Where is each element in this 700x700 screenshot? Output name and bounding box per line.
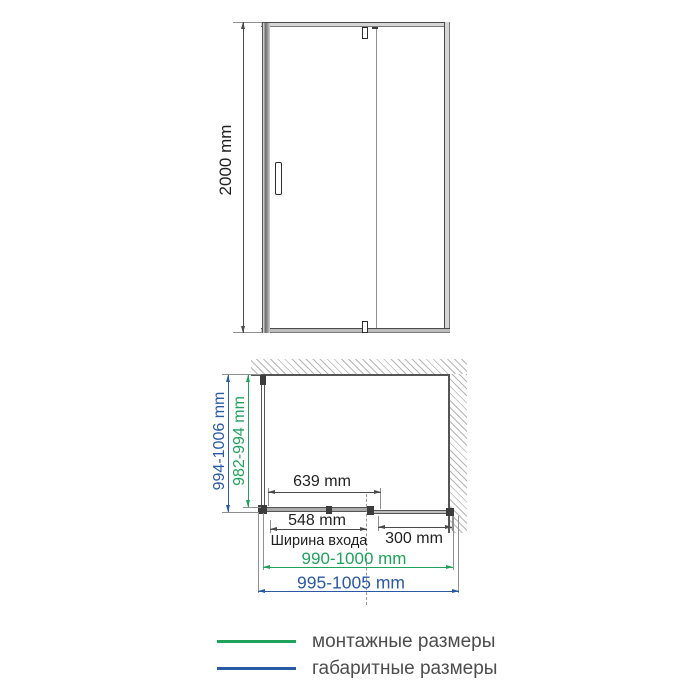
legend-mounting-swatch (217, 640, 296, 643)
technical-drawing-canvas: 2000 mm 639 mm 548 mm Ширина входа (0, 0, 700, 700)
side-panel-wall-block (260, 375, 266, 385)
dim-639-label: 639 mm (293, 473, 351, 491)
door-divider-line (376, 27, 377, 328)
height-extension-bottom (233, 332, 262, 333)
plan-view: 639 mm 548 mm Ширина входа 300 mm 990-10… (0, 350, 700, 610)
legend-overall-swatch (217, 667, 296, 670)
dim-300-line (378, 527, 452, 528)
ext-width-right-inner (453, 516, 454, 570)
legend-overall-label: габаритные размеры (312, 658, 497, 680)
dim-300-label: 300 mm (385, 530, 443, 548)
top-hinge-mount (372, 27, 378, 29)
legend: монтажные размеры габаритные размеры (0, 610, 700, 700)
wall-profile-left (262, 23, 270, 333)
dim-overall-width-label: 995-1005 mm (297, 573, 405, 594)
frame-right (444, 22, 450, 333)
bottom-hinge (362, 321, 368, 333)
height-extension-top (233, 22, 262, 23)
ext-width-left-outer (258, 513, 259, 593)
top-hinge (362, 27, 368, 39)
dim-639-line (268, 492, 381, 493)
side-panel-plan (261, 375, 265, 508)
frame-bottom (261, 328, 450, 333)
dim-overall-depth-label: 994-1006 mm (211, 392, 229, 491)
entrance-width-caption: Ширина входа (271, 533, 368, 549)
wall-mount-block (446, 508, 454, 516)
height-dimension-line (243, 22, 244, 333)
height-dimension-label: 2000 mm (216, 125, 236, 196)
wall-hatch-back (251, 359, 467, 374)
dim-mounting-depth-label: 982-994 mm (231, 396, 249, 486)
ext-width-left-inner (263, 513, 264, 570)
dim-mounting-width-label: 990-1000 mm (302, 549, 407, 569)
door-handle (275, 162, 282, 195)
wall-line-back (251, 374, 449, 376)
ext-width-right-outer (458, 516, 459, 593)
dim-548-label: 548 mm (288, 512, 346, 530)
door-edge-block (367, 506, 374, 515)
front-view: 2000 mm (0, 0, 700, 350)
fixed-panel-plan (374, 510, 448, 515)
frame-top (261, 22, 450, 27)
legend-mounting-label: монтажные размеры (312, 631, 495, 653)
